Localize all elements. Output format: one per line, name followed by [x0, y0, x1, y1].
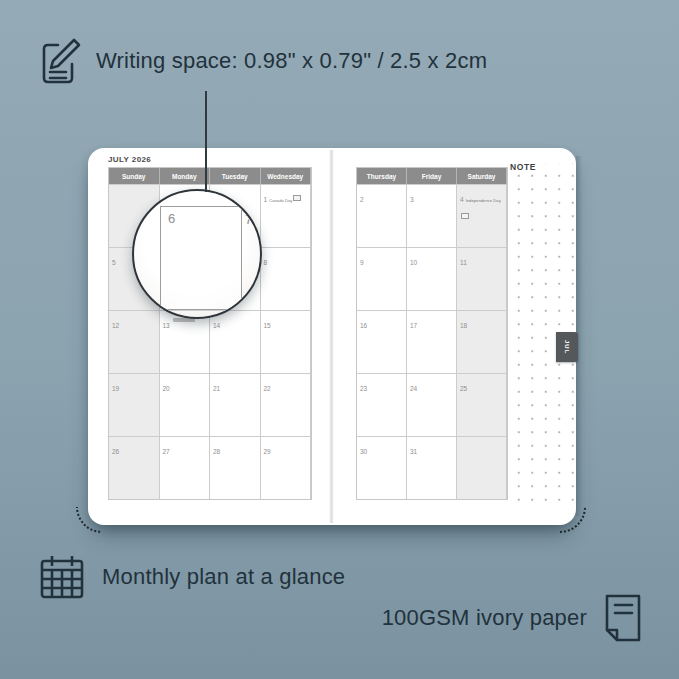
- day-cell: 29: [261, 436, 312, 499]
- day-number: 21: [213, 385, 220, 392]
- paper-sheet-icon: [601, 592, 645, 644]
- day-number: 15: [264, 322, 271, 329]
- flag-icon: [461, 213, 469, 220]
- day-cell: 27: [160, 436, 211, 499]
- monthly-plan-text: Monthly plan at a glance: [102, 564, 345, 590]
- day-cell: 31: [407, 436, 457, 499]
- monthly-plan-feature: Monthly plan at a glance: [38, 554, 345, 600]
- day-number: 30: [360, 448, 367, 455]
- day-cell: 12: [109, 310, 160, 373]
- day-number: 19: [112, 385, 119, 392]
- day-number: 24: [410, 385, 417, 392]
- day-number: 18: [460, 322, 467, 329]
- calendar-grid-right: ThursdayFridaySaturday234Independence Da…: [356, 167, 508, 500]
- day-number: 12: [112, 322, 119, 329]
- day-number: 9: [360, 259, 364, 266]
- day-cell: 22: [261, 373, 312, 436]
- day-cell: 2: [357, 184, 407, 247]
- day-cell: 28: [210, 436, 261, 499]
- day-number: 13: [163, 322, 170, 329]
- day-cell: 26: [109, 436, 160, 499]
- day-cell: 10: [407, 247, 457, 310]
- magnifier-circle: 6 7: [132, 189, 262, 319]
- weekday-header: Saturday: [457, 168, 507, 184]
- notepad-pencil-icon: [38, 36, 84, 86]
- day-cell: 25: [457, 373, 507, 436]
- day-number: 11: [460, 259, 467, 266]
- paper-text: 100GSM ivory paper: [382, 605, 587, 631]
- month-side-tab: JUL: [556, 332, 578, 362]
- day-number: 1: [264, 196, 268, 203]
- day-cell: 24: [407, 373, 457, 436]
- day-number: 16: [360, 322, 367, 329]
- day-number: 4: [460, 196, 464, 203]
- day-number: 20: [163, 385, 170, 392]
- day-cell: 11: [457, 247, 507, 310]
- day-cell: 17: [407, 310, 457, 373]
- writing-space-feature: Writing space: 0.98" x 0.79" / 2.5 x 2cm: [38, 36, 487, 86]
- day-cell: 23: [357, 373, 407, 436]
- writing-space-text: Writing space: 0.98" x 0.79" / 2.5 x 2cm: [96, 48, 487, 74]
- day-cell: 19: [109, 373, 160, 436]
- note-label: NOTE: [510, 162, 540, 174]
- day-number: 22: [264, 385, 271, 392]
- weekday-header: Tuesday: [210, 168, 261, 184]
- calendar-grid-icon: [38, 554, 86, 600]
- day-cell: 18: [457, 310, 507, 373]
- day-cell: 9: [357, 247, 407, 310]
- weekday-header: Wednesday: [261, 168, 312, 184]
- day-cell: 21: [210, 373, 261, 436]
- day-number: 10: [410, 259, 417, 266]
- day-cell: 3: [407, 184, 457, 247]
- holiday-label: Canada Day: [269, 198, 292, 203]
- day-cell: 8: [261, 247, 312, 310]
- day-number: 5: [112, 259, 116, 266]
- weekday-header: Thursday: [357, 168, 407, 184]
- day-number: 26: [112, 448, 119, 455]
- day-number: 29: [264, 448, 271, 455]
- day-number: 17: [410, 322, 417, 329]
- product-image: Writing space: 0.98" x 0.79" / 2.5 x 2cm…: [0, 0, 679, 679]
- day-cell: 14: [210, 310, 261, 373]
- day-cell: 30: [357, 436, 407, 499]
- book-spine: [329, 150, 334, 523]
- day-number: 28: [213, 448, 220, 455]
- magnified-day-number: 6: [168, 211, 175, 226]
- day-cell: [457, 436, 507, 499]
- day-number: 25: [460, 385, 467, 392]
- month-side-tab-label: JUL: [564, 340, 570, 354]
- day-number: 27: [163, 448, 170, 455]
- day-cell: 1Canada Day: [261, 184, 312, 247]
- weekday-header: Sunday: [109, 168, 160, 184]
- day-cell: 15: [261, 310, 312, 373]
- day-cell: 16: [357, 310, 407, 373]
- day-number: 8: [264, 259, 268, 266]
- day-number: 3: [410, 196, 414, 203]
- paper-feature: 100GSM ivory paper: [382, 592, 645, 644]
- day-cell: 4Independence Day: [457, 184, 507, 247]
- holiday-label: Independence Day: [466, 198, 501, 203]
- callout-connector-line: [205, 91, 207, 192]
- day-number: 2: [360, 196, 364, 203]
- day-number: 14: [213, 322, 220, 329]
- day-number: 23: [360, 385, 367, 392]
- weekday-header: Friday: [407, 168, 457, 184]
- flag-icon: [293, 195, 301, 202]
- day-number: 31: [410, 448, 417, 455]
- weekday-header: Monday: [160, 168, 211, 184]
- day-cell: 20: [160, 373, 211, 436]
- month-title: JULY 2026: [108, 155, 151, 164]
